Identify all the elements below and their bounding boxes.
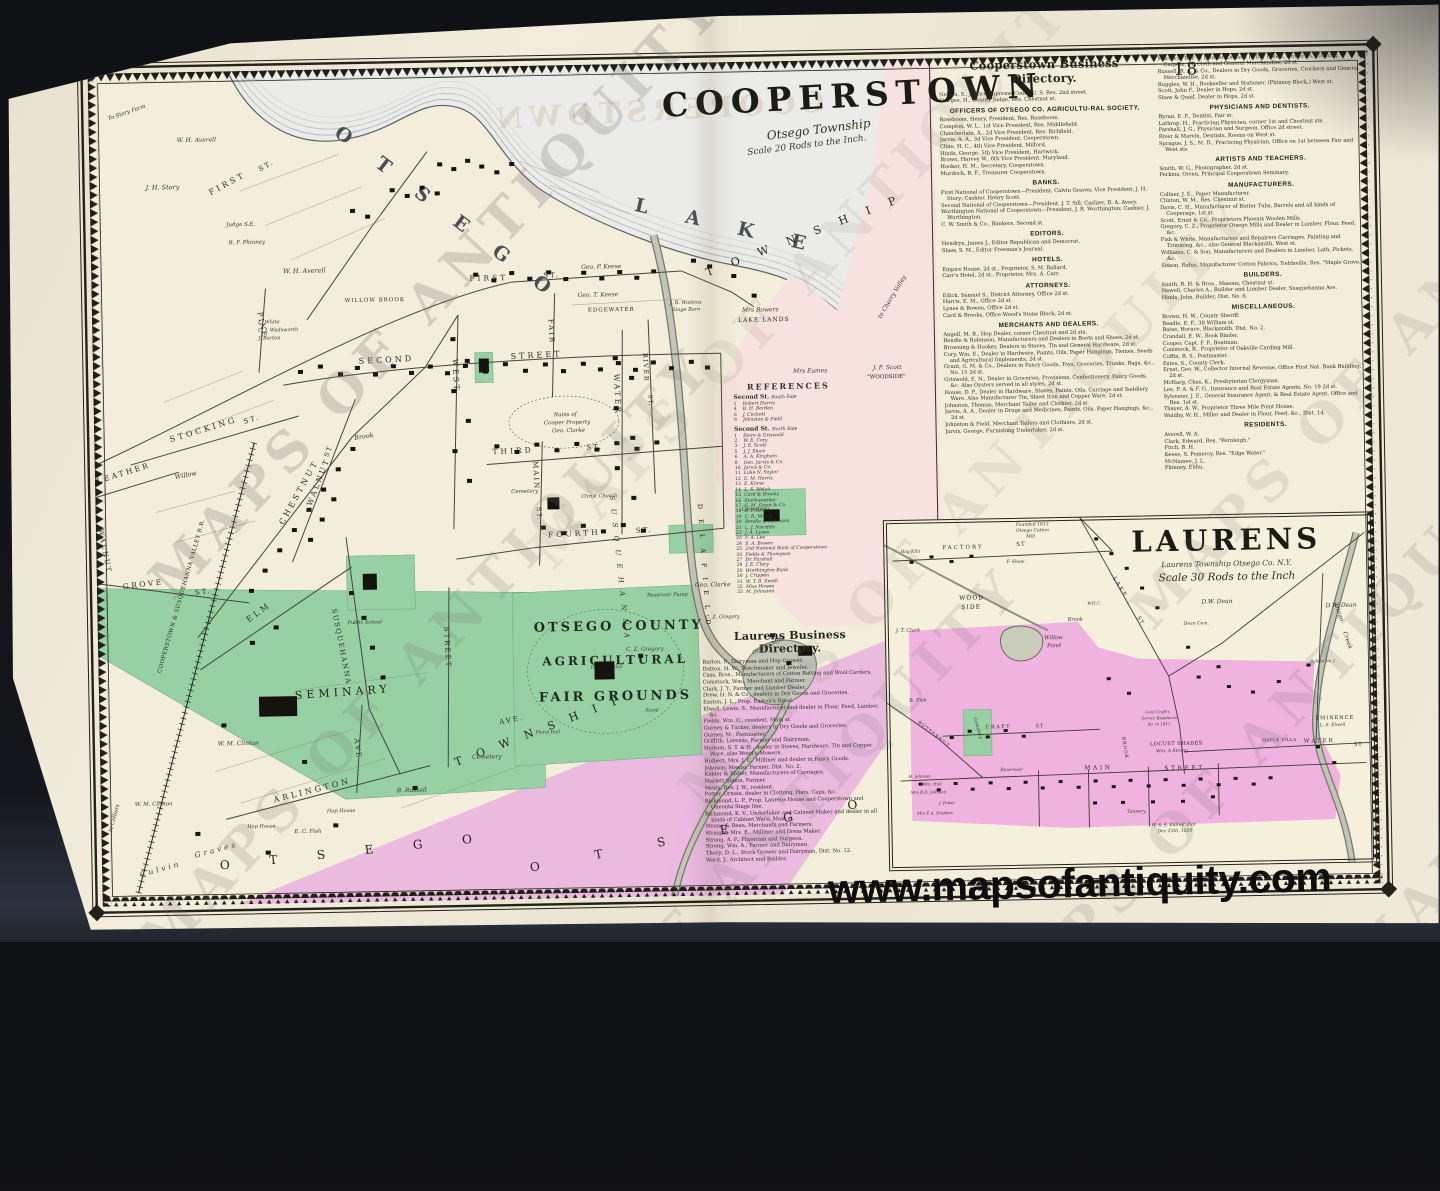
page-fold-shadow <box>688 0 740 942</box>
page-number: 18 <box>1173 59 1199 79</box>
atlas-page: O T S E G OL A K ET O W N S H I PT O W N… <box>0 0 1440 942</box>
corner-shadow <box>1220 0 1440 170</box>
photo-of-atlas-page: { "page": { "number": "18", "website": "… <box>0 0 1440 942</box>
